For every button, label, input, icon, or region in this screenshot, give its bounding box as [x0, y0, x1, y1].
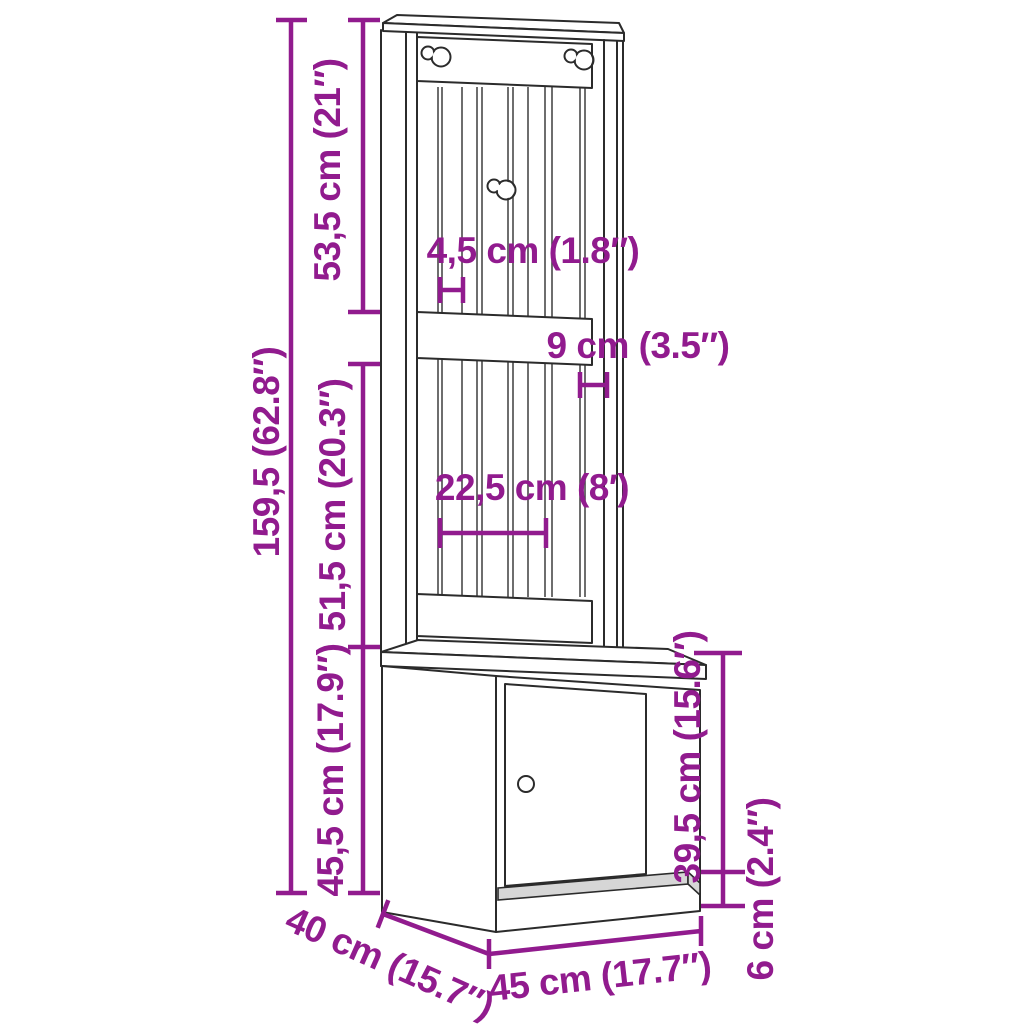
dimension-side-rail-width: [580, 372, 607, 398]
door-height-label: 39,5 cm (15.6″): [667, 631, 708, 884]
dimension-bracket: [580, 372, 607, 398]
middle-section-height-label: 51,5 cm (20.3″): [312, 379, 353, 632]
top-section-height-label: 53,5 cm (21″): [307, 58, 348, 281]
plinth-height-label: 6 cm (2.4″): [740, 798, 781, 981]
dimension-slat-width: [440, 277, 463, 303]
cabinet-section-height-label: 45,5 cm (17.9″): [310, 644, 351, 897]
side-rail-width-label: 9 cm (3.5″): [547, 325, 730, 366]
furniture-dimension-diagram: 159,5 (62.8″) 53,5 cm (21″) 51,5 cm (20.…: [0, 0, 1024, 1024]
width-label: 45 cm (17.7″): [487, 944, 713, 1009]
slat-group-width-label: 22,5 cm (8′): [435, 467, 629, 508]
middle-coat-hook-icon: [488, 180, 516, 200]
dimension-slat-group-width: [440, 518, 546, 548]
hook-rail: [417, 37, 594, 88]
total-height-label: 159,5 (62.8″): [246, 347, 287, 558]
dimension-bracket: [440, 277, 463, 303]
dimension-bracket: [440, 518, 546, 548]
base-cabinet: [381, 640, 706, 932]
cabinet-left-side-face: [382, 666, 496, 932]
lower-rail-board: [417, 594, 592, 643]
diagram-canvas: 159,5 (62.8″) 53,5 cm (21″) 51,5 cm (20.…: [0, 0, 1024, 1024]
dimension-line: [348, 20, 380, 312]
slat-width-label: 4,5 cm (1.8″): [427, 230, 640, 271]
